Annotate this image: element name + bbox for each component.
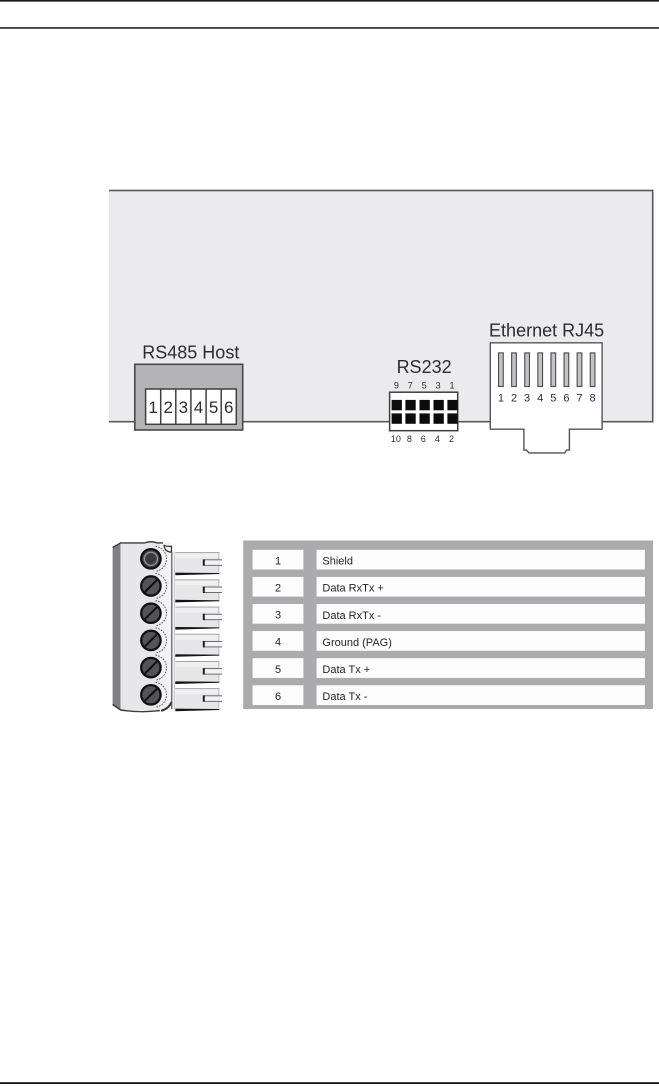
svg-text:2: 2 — [511, 393, 517, 405]
svg-text:5: 5 — [275, 664, 281, 676]
svg-text:3: 3 — [436, 380, 441, 390]
svg-text:1: 1 — [498, 393, 504, 405]
svg-text:7: 7 — [408, 380, 413, 390]
svg-text:7: 7 — [576, 393, 582, 405]
svg-text:4: 4 — [435, 434, 440, 444]
svg-text:3: 3 — [275, 610, 281, 622]
svg-text:2: 2 — [275, 583, 281, 595]
svg-text:2: 2 — [163, 398, 172, 417]
svg-text:RS485 Host: RS485 Host — [142, 343, 239, 363]
svg-text:Ground (PAG): Ground (PAG) — [322, 637, 392, 649]
svg-text:Data Tx -: Data Tx - — [322, 691, 367, 703]
svg-text:RS232: RS232 — [397, 357, 452, 377]
svg-text:Data RxTx +: Data RxTx + — [322, 583, 383, 595]
svg-text:5: 5 — [209, 398, 218, 417]
svg-text:Shield: Shield — [322, 556, 353, 568]
svg-text:6: 6 — [421, 434, 426, 444]
svg-text:6: 6 — [275, 691, 281, 703]
svg-text:6: 6 — [224, 398, 233, 417]
svg-text:4: 4 — [275, 637, 281, 649]
svg-text:8: 8 — [590, 393, 596, 405]
svg-text:4: 4 — [194, 398, 203, 417]
svg-text:4: 4 — [537, 393, 543, 405]
svg-text:Data RxTx -: Data RxTx - — [322, 610, 381, 622]
svg-text:10: 10 — [391, 434, 401, 444]
svg-text:1: 1 — [148, 398, 157, 417]
svg-text:Ethernet RJ45: Ethernet RJ45 — [489, 320, 604, 340]
svg-text:5: 5 — [422, 380, 427, 390]
svg-text:2: 2 — [449, 434, 454, 444]
svg-text:6: 6 — [563, 393, 569, 405]
svg-text:3: 3 — [179, 398, 188, 417]
svg-text:5: 5 — [550, 393, 556, 405]
svg-text:9: 9 — [394, 380, 399, 390]
svg-text:3: 3 — [524, 393, 530, 405]
svg-text:1: 1 — [449, 380, 454, 390]
svg-text:8: 8 — [407, 434, 412, 444]
svg-text:Data Tx +: Data Tx + — [322, 664, 370, 676]
svg-text:1: 1 — [275, 555, 281, 567]
